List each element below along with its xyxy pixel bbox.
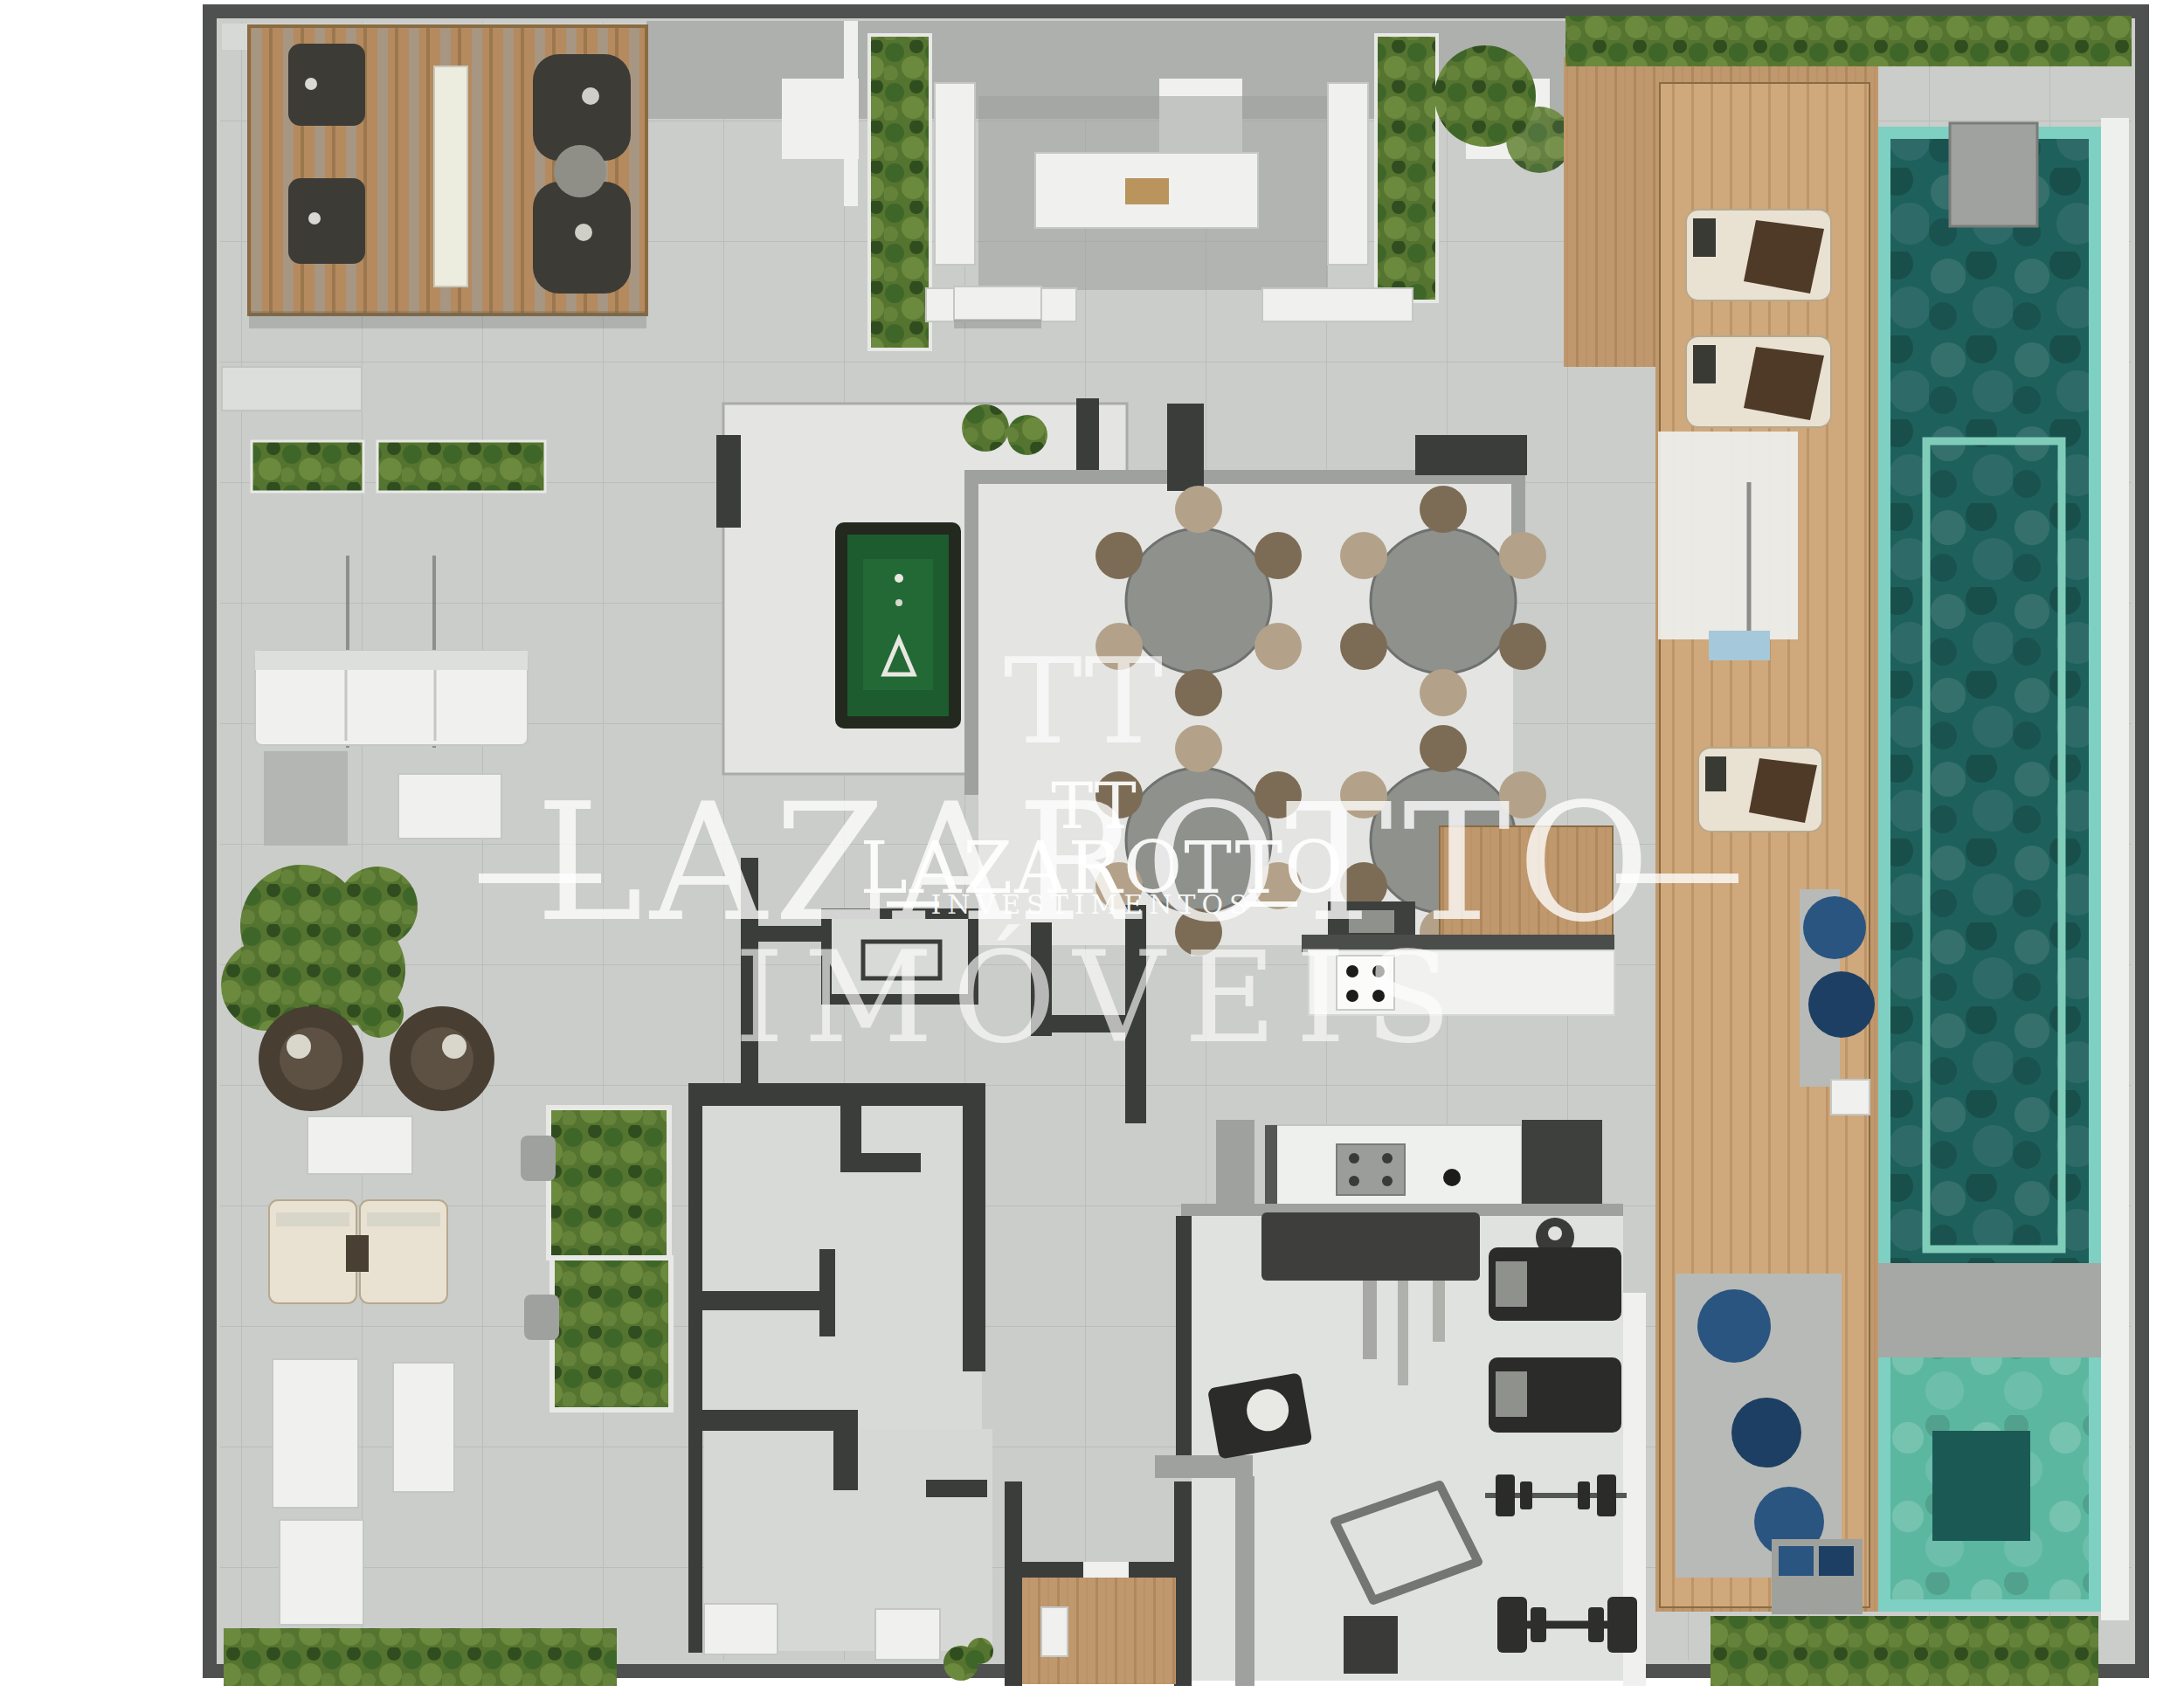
watermark-subtitle: INVESTIMENTOS bbox=[930, 889, 1253, 920]
planter-box bbox=[552, 1258, 671, 1410]
bench-pad bbox=[1496, 1371, 1527, 1417]
wall bbox=[688, 1291, 828, 1310]
bean-bag bbox=[1803, 896, 1866, 959]
floor-plan-image: TT LAZAROTTO TT LAZAROTTO INVESTIMENTOS … bbox=[0, 0, 2184, 1692]
wall bbox=[926, 1480, 987, 1497]
watermark-dash-left bbox=[887, 901, 939, 907]
cabinet bbox=[1216, 1120, 1254, 1207]
hedge-bottom-left bbox=[224, 1628, 617, 1686]
bean-bag bbox=[1808, 971, 1875, 1038]
rack-shadow bbox=[1433, 1281, 1445, 1342]
plant bbox=[355, 989, 404, 1038]
planter-bar bbox=[1415, 435, 1527, 475]
wall bbox=[963, 1083, 985, 1371]
wall-bench bbox=[222, 367, 362, 411]
wall bbox=[1174, 1481, 1192, 1686]
sun-lounger bbox=[1698, 748, 1822, 832]
wall bbox=[688, 1083, 985, 1106]
bench-pad bbox=[1496, 1261, 1527, 1307]
lounge-chair bbox=[288, 178, 365, 264]
dining-wall-left bbox=[964, 470, 978, 795]
fire-tray bbox=[1125, 178, 1169, 204]
planter-box bbox=[252, 441, 363, 492]
bench-right bbox=[1262, 288, 1413, 321]
planter-right bbox=[1376, 35, 1437, 301]
side-table bbox=[1831, 1080, 1870, 1115]
chair bbox=[521, 1136, 556, 1181]
low-table bbox=[308, 1116, 412, 1174]
wall bbox=[1235, 1476, 1254, 1686]
side-table bbox=[554, 145, 606, 197]
rack-shadow bbox=[1398, 1281, 1408, 1385]
hedge-top bbox=[1565, 16, 2132, 66]
rattan-chair bbox=[390, 1006, 494, 1111]
chair bbox=[524, 1295, 559, 1340]
wall bbox=[688, 1083, 702, 1653]
shower-mat bbox=[1658, 432, 1798, 639]
shelf bbox=[954, 287, 1041, 320]
pool-platform bbox=[1950, 123, 2037, 226]
rug bbox=[264, 751, 348, 846]
watermark-rule-left bbox=[479, 874, 601, 883]
long-table bbox=[434, 66, 467, 287]
sofa-left bbox=[935, 83, 975, 265]
fixture bbox=[704, 1604, 778, 1654]
wall bbox=[1176, 1216, 1192, 1476]
sauna-door bbox=[1083, 1562, 1129, 1578]
cushion-highlight bbox=[305, 78, 317, 90]
gym bbox=[1155, 1204, 1646, 1686]
planter-box bbox=[377, 441, 545, 492]
outdoor-sofa bbox=[255, 651, 528, 745]
daybed bbox=[393, 1363, 454, 1492]
sun-lounger bbox=[1686, 336, 1831, 427]
pool-walkway bbox=[2101, 118, 2129, 1620]
tree bbox=[1506, 107, 1572, 173]
coffee-table bbox=[398, 774, 501, 839]
pergola-shadow bbox=[249, 311, 646, 328]
pool-bridge bbox=[1878, 1263, 2101, 1357]
pergola-deck bbox=[249, 26, 646, 328]
shelf-shadow bbox=[954, 320, 1041, 328]
bench-cushion bbox=[1819, 1546, 1854, 1576]
wall bbox=[1005, 1481, 1022, 1686]
sauna-window bbox=[1041, 1607, 1068, 1656]
floor-plan: TT LAZAROTTO TT LAZAROTTO INVESTIMENTOS … bbox=[0, 0, 2184, 1692]
weight-rack bbox=[1261, 1212, 1480, 1281]
bench-cushion bbox=[1779, 1546, 1814, 1576]
planter-left bbox=[869, 35, 930, 349]
sofa-right bbox=[1328, 83, 1368, 265]
sink-drain bbox=[1443, 1169, 1461, 1186]
bean-bag bbox=[1731, 1398, 1801, 1468]
plant bbox=[962, 404, 1009, 452]
sun-lounger bbox=[1686, 210, 1831, 300]
watermark-dash-right bbox=[1245, 901, 1297, 907]
planter-box bbox=[549, 1108, 669, 1258]
partition-wall bbox=[844, 21, 858, 206]
watermark-rule-right bbox=[1616, 874, 1738, 883]
fixture bbox=[875, 1609, 940, 1660]
rattan-chair bbox=[259, 1006, 363, 1111]
planter-bar bbox=[1167, 404, 1204, 491]
lounge-chair bbox=[288, 44, 365, 126]
watermark-footer: IMÓVEIS bbox=[734, 923, 1470, 1071]
hedge-bottom-right bbox=[1711, 1616, 2098, 1686]
curved-sofa bbox=[533, 54, 631, 161]
pool-inset bbox=[1932, 1431, 2030, 1541]
billiards-table bbox=[835, 522, 961, 729]
cushion-highlight bbox=[575, 224, 592, 241]
plant bbox=[967, 1638, 993, 1664]
kettlebell-handle bbox=[1548, 1226, 1562, 1240]
plant bbox=[1007, 415, 1047, 455]
stove bbox=[1337, 1144, 1405, 1195]
wall bbox=[833, 1410, 858, 1490]
watermark-logo-large: TT bbox=[1004, 633, 1164, 770]
pool bbox=[1878, 118, 2129, 1620]
wall bbox=[819, 1249, 835, 1336]
rack-shadow bbox=[1363, 1281, 1377, 1359]
equipment-block bbox=[1344, 1616, 1398, 1674]
wall bbox=[840, 1153, 921, 1172]
door-jamb bbox=[716, 435, 741, 528]
bean-bag bbox=[1697, 1289, 1771, 1363]
cushion-highlight bbox=[582, 87, 599, 105]
daybed bbox=[280, 1520, 363, 1625]
wall bbox=[688, 1410, 854, 1431]
towel bbox=[1709, 631, 1770, 660]
wall bbox=[1155, 1455, 1253, 1478]
daybed bbox=[273, 1359, 358, 1508]
cushion-highlight bbox=[308, 212, 321, 224]
